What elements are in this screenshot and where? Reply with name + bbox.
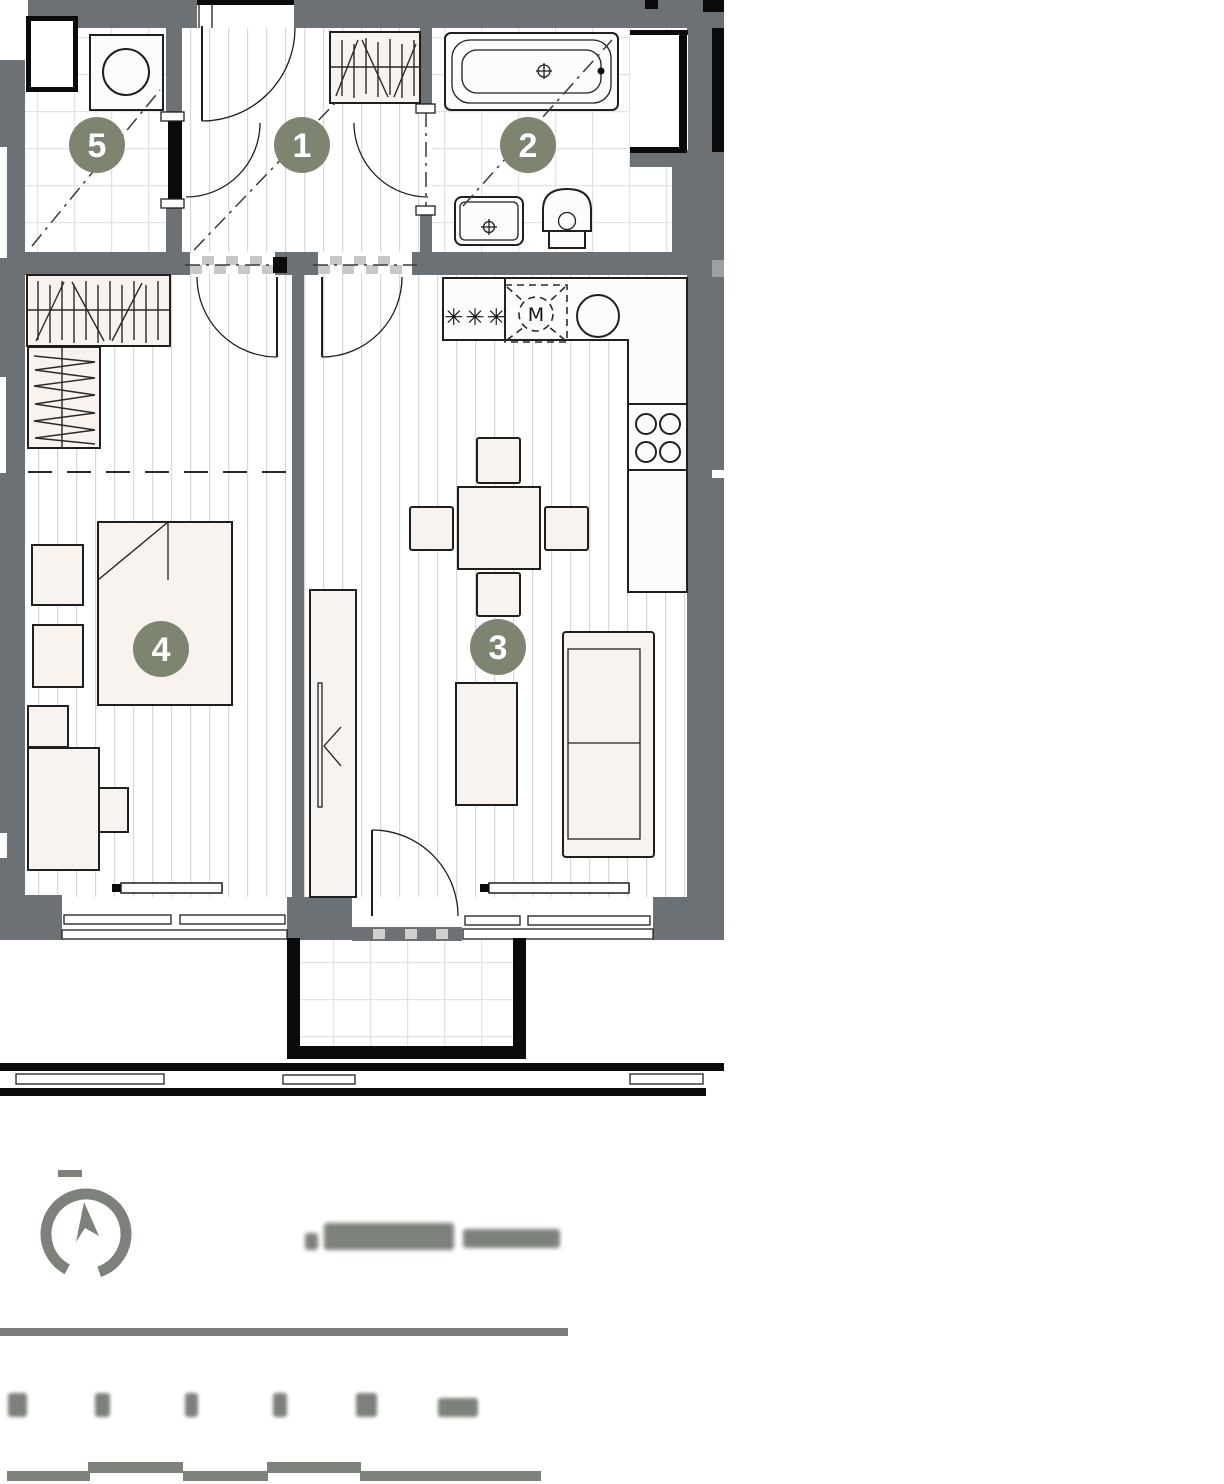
- bedroom-radiator: [112, 883, 222, 893]
- room-number-1: 1: [293, 127, 312, 165]
- north-compass-icon: [38, 1170, 138, 1286]
- cooktop: [628, 404, 687, 470]
- facade-band: [0, 1063, 724, 1096]
- balcony-floor: [300, 940, 513, 1046]
- nightstand: [33, 625, 83, 687]
- legend-divider: [0, 1328, 568, 1336]
- floorplan-drawing: ✳✳✳ M: [0, 0, 724, 1110]
- bathtub: [445, 33, 618, 110]
- room-badge-1: 1: [274, 117, 330, 173]
- low-cabinet: [28, 706, 68, 747]
- room-number-5: 5: [88, 127, 107, 165]
- room-badge-2: 2: [500, 117, 556, 173]
- livingroom-radiator: [480, 883, 629, 893]
- desk-chair: [99, 788, 128, 832]
- dining-table: [458, 487, 540, 569]
- coffee-table: [456, 683, 517, 805]
- plan-title-blurred: [300, 1218, 570, 1258]
- livingroom-window: [462, 897, 653, 940]
- room-number-2: 2: [519, 127, 538, 165]
- balcony-door-sill: [352, 927, 462, 941]
- livingroom-wardrobe: [310, 590, 356, 897]
- room-badge-3: 3: [470, 619, 526, 675]
- bedroom-wardrobe: [27, 275, 170, 346]
- scale-bar: [0, 1462, 560, 1484]
- bedroom-closet: [28, 347, 100, 448]
- room-number-3: 3: [489, 629, 508, 667]
- sofa: [563, 632, 654, 857]
- room-badge-5: 5: [69, 117, 125, 173]
- scale-tick-labels-blurred: [0, 1388, 500, 1422]
- room-badge-4: 4: [133, 621, 189, 677]
- toilet: [543, 189, 591, 248]
- washer-marker-label: M: [528, 304, 544, 326]
- floorplan-page: ✳✳✳ M: [0, 0, 1224, 1484]
- bathtub-drain: [598, 68, 605, 75]
- desk: [28, 748, 99, 870]
- appliance-symbol: ✳✳✳: [444, 305, 508, 331]
- nightstand: [32, 545, 83, 605]
- hall-wardrobe: [330, 32, 420, 103]
- bedroom-window: [62, 897, 287, 940]
- room-number-4: 4: [152, 631, 171, 669]
- bed: [98, 522, 232, 705]
